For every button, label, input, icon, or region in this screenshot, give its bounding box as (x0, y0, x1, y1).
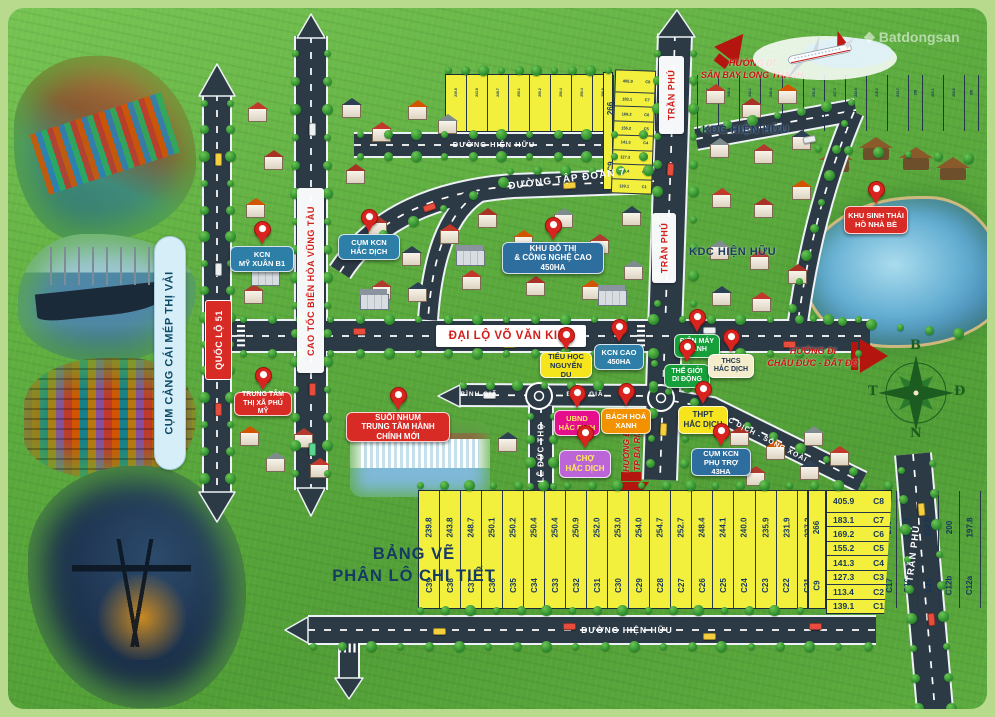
tree-icon (884, 481, 893, 490)
tree-icon (745, 606, 754, 615)
direction-chau-duc: HƯỚNG ĐICHÂU ĐỨC - ĐẤT ĐỎ (763, 346, 863, 369)
tree-icon (324, 386, 331, 393)
house-icon (408, 288, 427, 302)
plot-cell-C27[interactable]: 252.7C27 (671, 491, 692, 608)
house-icon (264, 156, 283, 170)
road-label-tran-phu-mid: TRẦN PHÚ (652, 213, 676, 283)
plot-id: C25 (713, 564, 733, 608)
tree-icon (648, 348, 659, 359)
tree-icon (795, 315, 804, 324)
house-icon (712, 194, 731, 208)
poi-pin-bach-hoa-xanh[interactable] (618, 383, 635, 407)
factory-icon (360, 294, 389, 310)
poi-pin-thpt-hac-dich[interactable] (695, 381, 712, 405)
tree-icon (866, 319, 877, 330)
tree-icon (324, 470, 331, 477)
poi-pin-cum-kcn-hac-dich[interactable] (361, 209, 378, 233)
house-icon (266, 458, 285, 472)
poi-khu-sinh-thai-ho-nha-be[interactable]: KHU SINH THÁIHỒ NHÀ BÈ (844, 206, 908, 234)
poi-pin-khu-sinh-thai-ho-nha-be[interactable] (868, 181, 885, 205)
plot-id: C9 (809, 564, 825, 608)
plot-cell-C24[interactable]: 240.0C24 (734, 491, 755, 608)
tree-icon (929, 460, 936, 467)
port-cluster-label: CỤM CẢNG CÁI MÉP THỊ VẢI (154, 236, 186, 470)
plot-cell-C32[interactable]: 250.9C32 (566, 491, 587, 608)
tree-icon (201, 100, 208, 107)
plot-area: 231.9 (777, 491, 797, 564)
tree-icon (384, 314, 395, 325)
tree-icon (560, 314, 571, 325)
road-label-le-duc-tho: LÊ ĐỨC THỌ (529, 414, 553, 490)
plot-cell-C22[interactable]: 231.9C22 (777, 491, 798, 608)
tree-icon (496, 151, 507, 162)
poi-bach-hoa-xanh[interactable]: BÁCH HOÁXANH (601, 408, 651, 434)
poi-cum-kcn-phu-tro[interactable]: CỤM KCNPHỤ TRỢ 43HA (691, 448, 751, 476)
tree-icon (810, 315, 817, 322)
plot-area: 235.9 (756, 491, 776, 564)
tree-icon (292, 134, 299, 141)
tree-icon (736, 481, 745, 490)
car-icon (215, 263, 222, 276)
tree-icon (240, 316, 247, 323)
plot-area: 253.0 (608, 491, 628, 564)
poi-kcn-cao-450ha[interactable]: KCN CAO450HA (594, 344, 644, 370)
tree-icon (322, 104, 333, 115)
house-icon (706, 90, 725, 104)
plot-cell-C33[interactable]: 250.4 (572, 75, 593, 131)
tree-icon (690, 133, 697, 140)
tree-icon (507, 168, 514, 175)
compass-west: T (868, 384, 878, 399)
plot-area: 250.4 (551, 75, 571, 110)
tree-icon (654, 300, 661, 307)
poi-pin-the-gioi-di-dong[interactable] (679, 339, 696, 363)
plot-row-C1[interactable]: 139.1C1 (827, 600, 891, 613)
tree-icon (689, 160, 698, 169)
plot-row-C1[interactable]: 139.1C1 (612, 179, 651, 194)
plot-cell-C33[interactable]: 250.4C33 (545, 491, 566, 608)
tree-icon (905, 151, 912, 158)
road-label-quoc-lo-51: QUỐC LỘ 51 (205, 300, 232, 380)
car-icon (309, 443, 316, 456)
poi-pin-tieu-hoc-nguyen-du[interactable] (558, 327, 575, 351)
map-canvas: 239.8243.8248.7250.1250.2250.4250.4250.9… (8, 8, 987, 709)
tree-icon (225, 151, 236, 162)
plot-row-C6[interactable]: 169.2C6 (614, 107, 653, 123)
tree-icon (199, 473, 210, 484)
poi-pin-trung-tam-thi-xa-phu-my[interactable] (255, 367, 272, 391)
plot-id: C24 (734, 564, 754, 608)
factory-icon (598, 290, 627, 306)
tree-icon (324, 218, 331, 225)
tree-icon (291, 413, 300, 422)
tree-icon (905, 585, 914, 594)
plot-id: C22 (777, 564, 797, 608)
plot-cell-C12b[interactable]: 200 (965, 75, 979, 131)
plot-cell-C26[interactable]: 248.4C26 (692, 491, 713, 608)
plot-cell-C38[interactable]: 243.8 (467, 75, 488, 131)
house-icon (248, 108, 267, 122)
house-icon (712, 292, 731, 306)
tree-icon (665, 388, 672, 395)
tree-icon (356, 349, 365, 358)
plot-id: C12 (981, 564, 987, 608)
tree-icon (440, 205, 447, 212)
watermark-logo-icon: ◆ (864, 28, 875, 45)
tree-icon (323, 77, 332, 86)
plot-strip-top: 239.8243.8248.7250.1250.2250.4250.4250.9… (445, 74, 605, 132)
tree-icon (652, 186, 663, 197)
poi-pin-thcs-hac-dich[interactable] (723, 329, 740, 353)
plot-cell-C34[interactable]: 250.4 (551, 75, 572, 131)
plot-row-C3[interactable]: 127.3C3 (827, 571, 891, 585)
tree-icon (931, 519, 942, 530)
tree-icon (200, 206, 209, 215)
plot-area: 244.1 (713, 491, 733, 564)
car-icon (215, 403, 222, 416)
tree-icon (685, 480, 696, 491)
plot-cell-C28[interactable]: 254.7C28 (650, 491, 671, 608)
house-icon (622, 212, 641, 226)
plot-area: 209 (909, 75, 922, 110)
tree-icon (531, 349, 540, 358)
map-screenshot: 239.8243.8248.7250.1250.2250.4250.4250.9… (0, 0, 995, 717)
plot-area: 195.8 (981, 491, 987, 564)
compass-east: Đ (954, 384, 965, 399)
compass-rose: B Đ N T (870, 342, 965, 442)
plot-row-C5[interactable]: 155.2C5 (827, 542, 891, 556)
plot-id: C12a (960, 564, 980, 608)
tree-icon (526, 131, 533, 138)
plot-area: 250.4 (524, 491, 544, 564)
tree-icon (327, 316, 334, 323)
plot-cell-C29[interactable]: 254.0C29 (629, 491, 650, 608)
tree-icon (581, 151, 592, 162)
tree-icon (572, 643, 579, 650)
tree-icon (445, 67, 452, 74)
tree-icon (569, 607, 576, 614)
tree-icon (721, 607, 728, 614)
tree-icon (464, 480, 475, 491)
plot-id: C34 (524, 564, 544, 608)
tree-icon (417, 482, 424, 489)
tree-icon (788, 304, 797, 313)
watermark: ◆ Batdongsan (864, 28, 960, 45)
tree-icon (833, 480, 844, 491)
tree-icon (322, 440, 333, 451)
plot-cell-C12a[interactable]: 197.8 (979, 75, 987, 131)
road-label-tran-phu-top: TRẦN PHÚ (659, 56, 684, 134)
tree-icon (934, 152, 943, 161)
tree-icon (323, 413, 332, 422)
tree-icon (936, 551, 943, 558)
house-icon (750, 256, 769, 270)
poi-pin-cum-kcn-phu-tro[interactable] (713, 423, 730, 447)
tree-icon (290, 440, 301, 451)
tree-icon (444, 349, 453, 358)
tree-icon (937, 581, 946, 590)
tree-icon (384, 152, 393, 161)
tree-icon (201, 180, 208, 187)
tree-icon (411, 151, 422, 162)
tree-icon (688, 642, 697, 651)
poi-khu-do-thi[interactable]: KHU ĐÔ THỊ& CÔNG NGHỆ CAO 450HA (502, 242, 604, 274)
tree-icon (200, 447, 209, 456)
house-icon (754, 204, 773, 218)
tree-icon (662, 481, 671, 490)
tree-icon (844, 146, 853, 155)
tree-icon (526, 153, 533, 160)
plot-area: 239.8 (446, 75, 466, 110)
plot-area: 197.8 (960, 491, 980, 564)
tree-icon (913, 703, 924, 710)
road-label-binh-gia-1: BÌNH GIÃ (458, 389, 500, 400)
plot-cell-C17[interactable]: 209 (909, 75, 923, 131)
tree-icon (688, 186, 699, 197)
poi-pin-kcn-my-xuan-b1[interactable] (254, 221, 271, 245)
house-icon (346, 170, 365, 184)
poi-pin-suoi-nhum[interactable] (390, 387, 407, 411)
road-label-hien-huu-top: ĐƯỜNG HIỆN HỮU (438, 138, 550, 151)
tree-icon (415, 316, 422, 323)
tree-icon (454, 641, 465, 652)
plot-cell-C15[interactable]: 202.0 (944, 75, 965, 131)
tree-icon (541, 605, 552, 616)
tree-icon (835, 643, 842, 650)
tree-icon (324, 134, 331, 141)
plot-corner-bottom: 266C9 (808, 490, 826, 609)
plot-cell-C31[interactable]: 252.0C31 (587, 491, 608, 608)
plot-area: 243.8 (467, 75, 487, 110)
tree-icon (629, 641, 640, 652)
tree-icon (291, 161, 300, 170)
poi-trung-tam-thi-xa-phu-my[interactable]: TRUNG TÂMTHỊ XÃ PHÚ MỸ (234, 392, 292, 416)
plot-row-C7[interactable]: 183.1C7 (615, 92, 654, 108)
plot-cell-C34[interactable]: 250.4C34 (524, 491, 545, 608)
tree-icon (517, 606, 526, 615)
plot-id: C33 (545, 564, 565, 608)
tree-icon (639, 152, 648, 161)
poi-kcn-my-xuan-b1[interactable]: KCNMỸ XUÂN B1 (230, 246, 294, 272)
tree-icon (541, 641, 552, 652)
tree-icon (324, 50, 331, 57)
plot-row-C2[interactable]: 113.4C2 (827, 585, 891, 599)
tree-icon (268, 315, 277, 324)
tree-icon (841, 120, 848, 127)
plot-cell-C12b[interactable]: 200C12b (939, 491, 960, 608)
plot-cell-C30[interactable]: 253.0C30 (608, 491, 629, 608)
house-icon (804, 432, 823, 446)
road-label-cao-toc: CAO TỐC BIÊN HÒA VŨNG TÀU (297, 188, 324, 373)
tree-icon (838, 317, 847, 326)
plot-area: 266 (809, 491, 825, 564)
tree-icon (512, 380, 523, 391)
plot-cell-C37[interactable]: 248.7 (488, 75, 509, 131)
compass-north: B (910, 338, 921, 353)
tree-icon (786, 482, 793, 489)
plot-row-C4[interactable]: 141.3C4 (827, 556, 891, 570)
tree-icon (776, 642, 785, 651)
tree-icon (551, 67, 558, 74)
tree-icon (503, 316, 510, 323)
tree-icon (384, 130, 393, 139)
tree-icon (601, 642, 610, 651)
tree-icon (310, 643, 317, 650)
plot-id: C27 (671, 564, 691, 608)
poi-pin-kcn-cao-450ha[interactable] (611, 319, 628, 343)
plot-area: 252.7 (671, 491, 691, 564)
tree-icon (682, 435, 689, 442)
poi-suoi-nhum[interactable]: SUỐI NHUMTRUNG TÂM HÀNH CHÍNH MỚI (346, 412, 450, 442)
house-icon (752, 298, 771, 312)
plot-cell-C16[interactable]: 205.1 (923, 75, 944, 131)
plot-cell-C36[interactable]: 250.1 (509, 75, 530, 131)
tree-icon (226, 286, 235, 295)
car-icon (353, 328, 366, 335)
tree-icon (804, 641, 815, 652)
car-icon (917, 503, 925, 517)
tree-icon (953, 328, 964, 339)
plot-area: 248.7 (488, 75, 508, 110)
house-icon (240, 432, 259, 446)
tree-icon (617, 605, 628, 616)
tree-icon (201, 421, 208, 428)
car-icon (703, 633, 716, 640)
tree-icon (824, 170, 835, 181)
tree-icon (417, 607, 424, 614)
tree-icon (774, 112, 781, 119)
poi-thcs-hac-dich[interactable]: THCSHẮC DỊCH (708, 354, 754, 378)
house-icon (526, 282, 545, 296)
plot-cell-C35[interactable]: 250.2 (530, 75, 551, 131)
tree-icon (498, 67, 505, 74)
tree-icon (680, 459, 689, 468)
tree-icon (465, 605, 476, 616)
tree-icon (849, 467, 858, 476)
tree-icon (515, 66, 524, 75)
tree-icon (292, 386, 299, 393)
road-label-tran-phu-bottom: TRẦN PHÚ (896, 522, 932, 584)
plot-row-C7[interactable]: 183.1C7 (827, 513, 891, 527)
plot-cell-C25[interactable]: 244.1C25 (713, 491, 734, 608)
tree-icon (930, 489, 939, 498)
plot-area: 250.9 (566, 491, 586, 564)
tree-icon (688, 103, 699, 114)
tree-icon (200, 286, 209, 295)
tree-icon (513, 642, 522, 651)
tree-icon (554, 152, 563, 161)
plot-id: C23 (756, 564, 776, 608)
tree-icon (199, 231, 210, 242)
plot-cell-C9[interactable]: 266C9 (809, 491, 825, 608)
tree-icon (669, 606, 678, 615)
tree-icon (899, 495, 908, 504)
tree-icon (759, 480, 770, 491)
plot-area: 240.0 (734, 491, 754, 564)
poi-pin-cho-hac-dich[interactable] (577, 425, 594, 449)
plot-cell-C12[interactable]: 195.8C12 (981, 491, 987, 608)
tree-icon (338, 642, 347, 651)
area-kdc-hien-huu-top: KDC HIỆN HỮU (702, 124, 789, 136)
house-icon (624, 266, 643, 280)
tree-icon (693, 605, 704, 616)
tree-icon (796, 278, 803, 285)
plot-row-C6[interactable]: 169.2C6 (827, 527, 891, 541)
car-icon (309, 383, 316, 396)
tree-icon (291, 77, 300, 86)
tree-icon (397, 643, 404, 650)
tree-icon (823, 314, 834, 325)
tree-icon (943, 643, 950, 650)
house-icon (830, 452, 849, 466)
poi-tieu-hoc-nguyen-du[interactable]: TIỂU HỌCNGUYỄN DU (540, 352, 592, 378)
tree-icon (810, 224, 819, 233)
tree-icon (531, 65, 542, 76)
tree-icon (268, 349, 277, 358)
tree-icon (200, 125, 209, 134)
tree-icon (440, 481, 449, 490)
tree-icon (797, 607, 804, 614)
tree-icon (946, 703, 957, 710)
plot-cell-C23[interactable]: 235.9C23 (756, 491, 777, 608)
tree-icon (201, 260, 208, 267)
plot-area: 205.1 (923, 75, 943, 110)
tree-icon (460, 382, 467, 389)
house-icon (402, 252, 421, 266)
poi-cum-kcn-hac-dich[interactable]: CỤM KCNHẮC DỊCH (338, 234, 400, 260)
tree-icon (648, 314, 659, 325)
tree-icon (707, 315, 716, 324)
plot-area: 202.0 (944, 75, 964, 110)
tree-icon (226, 125, 235, 134)
plot-area: 248.4 (692, 491, 712, 564)
tree-icon (873, 147, 884, 158)
tree-icon (408, 216, 419, 227)
poi-cho-hac-dich[interactable]: CHỢHẮC DỊCH (559, 450, 611, 478)
tree-icon (411, 129, 422, 140)
tree-icon (690, 300, 697, 307)
car-icon (927, 613, 935, 627)
tree-icon (564, 482, 571, 489)
plot-row-C4[interactable]: 141.3C4 (613, 136, 652, 152)
tree-icon (503, 350, 510, 357)
tree-icon (493, 607, 500, 614)
tree-icon (832, 145, 841, 154)
plot-area: 200 (965, 75, 978, 110)
tree-icon (514, 481, 523, 490)
plot-cell-C12a[interactable]: 197.8C12a (960, 491, 981, 608)
tree-icon (938, 611, 949, 622)
tree-icon (366, 641, 377, 652)
poi-pin-ubnd-hac-dich[interactable] (569, 385, 586, 409)
tree-icon (581, 129, 592, 140)
house-icon (478, 214, 497, 228)
poi-pin-dien-may-xanh[interactable] (689, 309, 706, 333)
tree-icon (327, 350, 334, 357)
plot-row-C8[interactable]: 405.9C8 (615, 70, 655, 93)
plot-row-C8[interactable]: 405.9C8 (827, 491, 891, 513)
tree-icon (688, 270, 699, 281)
tree-icon (227, 180, 234, 187)
poi-pin-khu-do-thi[interactable] (545, 217, 562, 241)
tree-icon (324, 302, 331, 309)
house-icon (408, 106, 427, 120)
tree-icon (767, 316, 774, 323)
tree-icon (611, 131, 618, 138)
tree-icon (797, 107, 806, 116)
tree-icon (588, 481, 597, 490)
car-icon (309, 123, 316, 136)
